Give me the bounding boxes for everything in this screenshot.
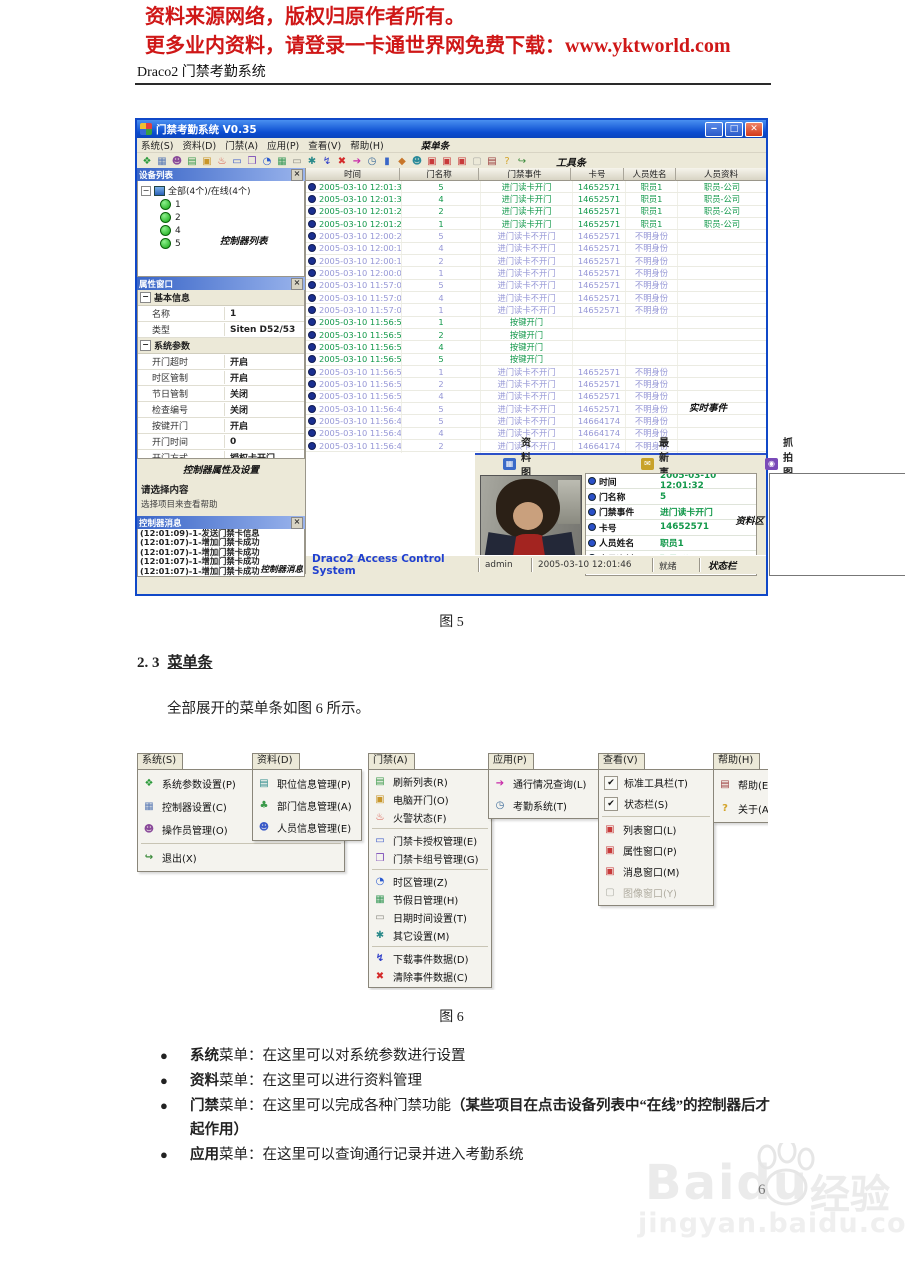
menubar-item[interactable]: 查看(V): [308, 138, 341, 152]
detail-row: 卡号14652571: [586, 520, 756, 535]
event-area: 时间门名称门禁事件卡号人员姓名人员资料 实时事件 2005-03-10 12:0…: [306, 168, 766, 574]
menu-item-label: 列表窗口(L): [623, 822, 676, 837]
name-cell: 不明身份: [626, 267, 678, 278]
bullet-marker: ●: [160, 1069, 190, 1093]
image-window-icon[interactable]: ▢: [470, 154, 484, 168]
document-title: Draco2 门禁考勤系统: [137, 61, 266, 81]
info-cell: [678, 415, 766, 426]
message-list: (12:01:09)-1-发送门禁卡信息(12:01:07)-1-增加门禁卡成功…: [137, 529, 305, 577]
event-icon: [308, 343, 316, 351]
door-cell: 2: [402, 329, 481, 340]
event-icon: [308, 232, 316, 240]
event-icon: [308, 331, 316, 339]
door-cell: 4: [402, 243, 481, 254]
settings-icon[interactable]: ✱: [305, 154, 319, 168]
event-time: 2005-03-10 12:01:30: [319, 194, 402, 204]
event-time: 2005-03-10 11:56:40: [319, 441, 402, 451]
event-time-cell: 2005-03-10 11:56:58: [306, 317, 402, 328]
about-icon: ?: [718, 802, 732, 815]
table-row[interactable]: 2005-03-10 11:56:581按键开门: [306, 317, 766, 329]
table-row[interactable]: 2005-03-10 11:56:522进门读卡不开门14652571不明身份: [306, 378, 766, 390]
table-row[interactable]: 2005-03-10 12:01:272进门读卡开门14652571职员1职员-…: [306, 206, 766, 218]
door-cell: 2: [402, 206, 481, 217]
table-row[interactable]: 2005-03-10 11:56:424进门读卡不开门14664174不明身份: [306, 428, 766, 440]
menu-tab[interactable]: 系统(S): [137, 753, 183, 769]
menu-item[interactable]: ✖清除事件数据(C): [369, 967, 491, 985]
property-label: 节日管制: [138, 387, 225, 400]
table-header: 时间门名称门禁事件卡号人员姓名人员资料: [306, 168, 766, 181]
property-row[interactable]: 节日管制关闭: [138, 386, 304, 402]
exit-icon[interactable]: ↪: [515, 154, 529, 168]
column-header[interactable]: 门名称: [400, 168, 479, 181]
info-cell: [678, 255, 766, 266]
table-row[interactable]: 2005-03-10 11:56:402进门读卡不开门14664174不明身份: [306, 440, 766, 452]
attendance-icon: ◷: [493, 799, 507, 812]
property-value: 0: [225, 437, 236, 447]
close-icon[interactable]: ×: [291, 517, 303, 529]
latest-event-icon: ✉: [641, 458, 654, 470]
computers-icon: [154, 186, 165, 196]
menu-dropdown: ✔标准工具栏(T)✔状态栏(S)▣列表窗口(L)▣属性窗口(P)▣消息窗口(M)…: [598, 769, 714, 906]
datetime-icon[interactable]: ▭: [290, 154, 304, 168]
snapshot-box: [769, 473, 905, 576]
property-section-label: 基本信息: [154, 291, 190, 304]
event-icon: [308, 244, 316, 252]
system-params-icon: ❖: [142, 777, 156, 790]
event-time-cell: 2005-03-10 11:56:42: [306, 428, 402, 439]
controller-icon[interactable]: ▦: [155, 154, 169, 168]
bullet-icon: [588, 539, 596, 547]
menu-item[interactable]: ▣电脑开门(O): [369, 790, 491, 808]
operator-icon[interactable]: ☻: [170, 154, 184, 168]
event-cell: 进门读卡不开门: [481, 267, 573, 278]
bullet-icon: [588, 523, 596, 531]
event-time: 2005-03-10 11:56:58: [319, 342, 402, 352]
card-cell: [573, 329, 626, 340]
menu-separator: [372, 869, 488, 870]
event-time: 2005-03-10 11:56:50: [319, 391, 402, 401]
menu-item[interactable]: ↯下载事件数据(D): [369, 949, 491, 967]
door-cell: 5: [402, 415, 481, 426]
property-value: 关闭: [225, 403, 248, 416]
name-cell: [626, 354, 678, 365]
fire-icon[interactable]: ♨: [215, 154, 229, 168]
card-cell: 14664174: [573, 428, 626, 439]
table-row[interactable]: 2005-03-10 12:01:304进门读卡开门14652571职员1职员-…: [306, 193, 766, 205]
column-header[interactable]: 时间: [306, 168, 400, 181]
property-row[interactable]: 类型Siten D52/53: [138, 322, 304, 338]
menu-item[interactable]: ➔通行情况查询(L): [489, 772, 608, 794]
event-icon: [308, 392, 316, 400]
event-time-cell: 2005-03-10 12:01:21: [306, 218, 402, 229]
property-label: 开门超时: [138, 355, 225, 368]
hint-text: 选择项目来查看帮助: [141, 498, 301, 510]
menu-item[interactable]: ▣消息窗口(M): [599, 861, 713, 882]
property-row[interactable]: 时区管制开启: [138, 370, 304, 386]
event-time-cell: 2005-03-10 11:56:50: [306, 391, 402, 402]
refresh-icon[interactable]: ▤: [185, 154, 199, 168]
property-value: Siten D52/53: [225, 325, 295, 335]
bullet-marker: ●: [160, 1044, 190, 1068]
maximize-button[interactable]: □: [725, 122, 743, 137]
name-cell: 不明身份: [626, 366, 678, 377]
msg-window-icon: ▣: [603, 865, 617, 878]
event-time: 2005-03-10 12:00:22: [319, 231, 402, 241]
copyright-notice: 资料来源网络，版权归原作者所有。 更多业内资料，请登录一卡通世界网免费下载：ww…: [145, 3, 731, 61]
menu-item[interactable]: ▤帮助(E): [714, 772, 768, 796]
detail-row: 门禁事件进门读卡开门: [586, 505, 756, 520]
info-cell: [678, 428, 766, 439]
menu-item[interactable]: ?关于(A): [714, 796, 768, 820]
pass-query-icon: ➔: [493, 777, 507, 790]
event-time-cell: 2005-03-10 11:56:58: [306, 329, 402, 340]
holiday-icon[interactable]: ▦: [275, 154, 289, 168]
property-label: 检查编号: [138, 403, 225, 416]
menu-item[interactable]: ☻人员信息管理(E): [253, 816, 361, 838]
event-time: 2005-03-10 11:57:04: [319, 293, 402, 303]
info-cell: [678, 366, 766, 377]
menu-tab[interactable]: 应用(P): [488, 753, 534, 769]
property-row[interactable]: 开门时间0: [138, 434, 304, 450]
menu-dropdown: ▤刷新列表(R)▣电脑开门(O)♨火警状态(F)▭门禁卡授权管理(E)❒门禁卡组…: [368, 769, 492, 988]
menubar-item[interactable]: 应用(P): [267, 138, 299, 152]
title-bar[interactable]: 门禁考勤系统 V0.35 ‒ □ ✕: [137, 120, 766, 138]
table-row[interactable]: 2005-03-10 12:00:225进门读卡不开门14652571不明身份: [306, 230, 766, 242]
column-header[interactable]: 门禁事件: [479, 168, 571, 181]
user-label: admin: [479, 558, 532, 572]
property-section[interactable]: −基本信息: [138, 290, 304, 306]
event-time-cell: 2005-03-10 12:00:22: [306, 230, 402, 241]
tree-root-label: 全部(4个)/在线(4个): [168, 184, 251, 197]
name-cell: 不明身份: [626, 255, 678, 266]
info-cell: [678, 280, 766, 291]
menu-item[interactable]: ▣属性窗口(P): [599, 840, 713, 861]
table-row[interactable]: 2005-03-10 11:56:582按键开门: [306, 329, 766, 341]
event-time-cell: 2005-03-10 12:00:08: [306, 267, 402, 278]
query-icon[interactable]: ➔: [350, 154, 364, 168]
table-row[interactable]: 2005-03-10 11:57:044进门读卡不开门14652571不明身份: [306, 292, 766, 304]
message-panel-header[interactable]: 控制器消息 ×: [137, 516, 305, 529]
event-time-cell: 2005-03-10 12:01:27: [306, 206, 402, 217]
menu-item-label: 退出(X): [162, 850, 197, 865]
property-row[interactable]: 按键开门开启: [138, 418, 304, 434]
connect-icon[interactable]: ❖: [140, 154, 154, 168]
menu-item-label: 职位信息管理(P): [277, 776, 351, 791]
name-cell: 不明身份: [626, 280, 678, 291]
tree-node[interactable]: 2: [138, 211, 304, 224]
property-label: 按键开门: [138, 419, 225, 432]
menu-item[interactable]: ▣列表窗口(L): [599, 819, 713, 840]
table-row[interactable]: 2005-03-10 12:00:132进门读卡不开门14652571不明身份: [306, 255, 766, 267]
detail-label-text: 门名称: [599, 490, 625, 503]
column-header[interactable]: 人员姓名: [624, 168, 676, 181]
card-cell: 14652571: [573, 391, 626, 402]
online-controller-icon: [160, 238, 171, 249]
property-row[interactable]: 开门超时开启: [138, 354, 304, 370]
event-icon: [308, 183, 316, 191]
menu-separator: [141, 843, 341, 844]
menu-item[interactable]: ✔状态栏(S): [599, 793, 713, 814]
close-button[interactable]: ✕: [745, 122, 763, 137]
online-controller-icon: [160, 212, 171, 223]
message-annotation: 控制器消息: [260, 563, 303, 575]
bullet-icon: [588, 477, 596, 485]
event-icon: [308, 355, 316, 363]
event-time-cell: 2005-03-10 12:01:32: [306, 181, 402, 192]
event-time: 2005-03-10 11:56:52: [319, 367, 402, 377]
bullet-text: 系统菜单：在这里可以对系统参数进行设置: [190, 1044, 466, 1068]
name-cell: 职员1: [626, 206, 678, 217]
menu-item[interactable]: ↪退出(X): [138, 846, 344, 869]
event-time-cell: 2005-03-10 11:56:58: [306, 341, 402, 352]
event-icon: [308, 417, 316, 425]
event-time-cell: 2005-03-10 11:57:05: [306, 280, 402, 291]
card-auth-icon[interactable]: ▭: [230, 154, 244, 168]
close-icon[interactable]: ×: [291, 169, 303, 181]
name-cell: 职员1: [626, 193, 678, 204]
fig6-caption: 图 6: [135, 1006, 768, 1026]
menu-查看(V): 查看(V)✔标准工具栏(T)✔状态栏(S)▣列表窗口(L)▣属性窗口(P)▣消息…: [598, 748, 722, 906]
menu-item[interactable]: ♣部门信息管理(A): [253, 794, 361, 816]
clear-icon[interactable]: ✖: [335, 154, 349, 168]
name-cell: [626, 329, 678, 340]
tree-node-label: 1: [175, 200, 181, 210]
event-time-cell: 2005-03-10 11:56:40: [306, 440, 402, 451]
event-time: 2005-03-10 12:01:27: [319, 206, 402, 216]
property-label: 类型: [138, 323, 225, 336]
event-time: 2005-03-10 12:00:19: [319, 243, 402, 253]
property-label: 开门时间: [138, 435, 225, 448]
property-value: 关闭: [225, 387, 248, 400]
position-info-icon: ▤: [257, 777, 271, 790]
toolbar-annotation: 工具条: [556, 154, 586, 169]
property-value: 授权卡开门: [225, 451, 275, 459]
menubar-item[interactable]: 资料(D): [182, 138, 216, 152]
detail-value: 进门读卡开门: [660, 505, 713, 518]
name-cell: 不明身份: [626, 243, 678, 254]
event-cell: 进门读卡不开门: [481, 280, 573, 291]
card-cell: 14652571: [573, 267, 626, 278]
ready-label: 就绪: [653, 558, 700, 572]
door-cell: 2: [402, 440, 481, 451]
menubar-item[interactable]: 帮助(H): [350, 138, 384, 152]
column-header[interactable]: 卡号: [571, 168, 624, 181]
image-window-icon: ▢: [603, 886, 617, 899]
lock-icon[interactable]: ▮: [380, 154, 394, 168]
menu-门禁(A): 门禁(A)▤刷新列表(R)▣电脑开门(O)♨火警状态(F)▭门禁卡授权管理(E)…: [368, 748, 500, 988]
name-cell: 职员1: [626, 181, 678, 192]
door-cell: 1: [402, 267, 481, 278]
card-cell: 14652571: [573, 243, 626, 254]
bullet-item: ●门禁菜单：在这里可以完成各种门禁功能（某些项目在点击设备列表中“在线”的控制器…: [160, 1094, 778, 1142]
event-time: 2005-03-10 12:00:08: [319, 268, 402, 278]
tree-node-label: 2: [175, 213, 181, 223]
info-cell: [678, 378, 766, 389]
info-cell: [678, 440, 766, 451]
info-cell: [678, 304, 766, 315]
table-row[interactable]: 2005-03-10 11:56:521进门读卡不开门14652571不明身份: [306, 366, 766, 378]
event-icon: [308, 318, 316, 326]
table-row[interactable]: 2005-03-10 12:01:325进门读卡开门14652571职员1职员-…: [306, 181, 766, 193]
table-row[interactable]: 2005-03-10 11:57:011进门读卡不开门14652571不明身份: [306, 304, 766, 316]
event-icon: [308, 405, 316, 413]
about-icon[interactable]: ?: [500, 154, 514, 168]
event-cell: 进门读卡开门: [481, 193, 573, 204]
timezone-icon[interactable]: ◔: [260, 154, 274, 168]
event-cell: 进门读卡开门: [481, 181, 573, 192]
detail-value: 职员1: [660, 536, 684, 549]
door-cell: 5: [402, 280, 481, 291]
property-panel-header[interactable]: 属性窗口 ×: [137, 277, 305, 290]
msg-window-icon[interactable]: ▣: [455, 154, 469, 168]
section-title: 菜单条: [168, 655, 213, 671]
event-cell: 进门读卡不开门: [481, 366, 573, 377]
menu-tab[interactable]: 资料(D): [252, 753, 300, 769]
close-icon[interactable]: ×: [291, 278, 303, 290]
download-events-icon: ↯: [373, 952, 387, 965]
camera-icon: ◉: [765, 458, 778, 470]
event-cell: 进门读卡不开门: [481, 243, 573, 254]
open-door-icon[interactable]: ▣: [200, 154, 214, 168]
door-cell: 2: [402, 452, 481, 453]
menu-item[interactable]: ✔标准工具栏(T): [599, 772, 713, 793]
card-group-icon[interactable]: ❒: [245, 154, 259, 168]
menubar-item[interactable]: 门禁(A): [225, 138, 258, 152]
bullet-text: 应用菜单：在这里可以查询通行记录并进入考勤系统: [190, 1143, 524, 1167]
key-icon[interactable]: ◆: [395, 154, 409, 168]
event-time: 2005-03-10 11:57:05: [319, 280, 402, 290]
event-icon: [308, 429, 316, 437]
event-time-cell: 2005-03-10 11:56:46: [306, 415, 402, 426]
menu-descriptions: ●系统菜单：在这里可以对系统参数进行设置●资料菜单：在这里可以进行资料管理●门禁…: [160, 1044, 778, 1168]
event-icon: [308, 442, 316, 450]
table-row[interactable]: 2005-03-10 12:00:081进门读卡不开门14652571不明身份: [306, 267, 766, 279]
menu-item-label: 帮助(E): [738, 777, 768, 792]
property-label: 名称: [138, 307, 225, 320]
menubar-item[interactable]: 系统(S): [141, 138, 173, 152]
detail-label-text: 卡号: [599, 521, 617, 534]
device-tree: − 全部(4个)/在线(4个) 1245 控制器列表: [137, 181, 305, 277]
door-cell: 4: [402, 193, 481, 204]
tree-node[interactable]: 1: [138, 198, 304, 211]
property-section[interactable]: −系统参数: [138, 338, 304, 354]
event-cell: 进门读卡不开门: [481, 230, 573, 241]
event-time-cell: 2005-03-10 11:56:49: [306, 403, 402, 414]
card-cell: 14652571: [573, 181, 626, 192]
menu-item[interactable]: ◔时区管理(Z): [369, 872, 491, 890]
event-cell: 按键开门: [481, 317, 573, 328]
menu-item[interactable]: ❒门禁卡组号管理(G): [369, 849, 491, 867]
download-icon[interactable]: ↯: [320, 154, 334, 168]
info-cell: 职员-公司: [678, 181, 766, 192]
property-row[interactable]: 检查编号关闭: [138, 402, 304, 418]
door-cell: 1: [402, 304, 481, 315]
detail-label: 门名称: [586, 490, 660, 503]
property-row[interactable]: 名称1: [138, 306, 304, 322]
left-panel: 设备列表 × − 全部(4个)/在线(4个) 1245 控制器列表 属性窗口 ×…: [137, 168, 306, 574]
device-panel-header[interactable]: 设备列表 ×: [137, 168, 305, 181]
property-grid: −基本信息名称1类型Siten D52/53−系统参数开门超时开启时区管制开启节…: [137, 290, 305, 459]
menu-item-label: 考勤系统(T): [513, 798, 567, 813]
door-cell: 5: [402, 230, 481, 241]
menu-item-label: 属性窗口(P): [623, 843, 677, 858]
menu-资料(D): 资料(D)▤职位信息管理(P)♣部门信息管理(A)☻人员信息管理(E): [252, 748, 370, 841]
event-cell: 进门读卡不开门: [481, 391, 573, 402]
menu-item[interactable]: ▭日期时间设置(T): [369, 908, 491, 926]
column-header[interactable]: 人员资料: [676, 168, 766, 181]
table-row[interactable]: 2005-03-10 11:56:565按键开门: [306, 354, 766, 366]
info-cell: 职员-公司: [678, 193, 766, 204]
menu-tab[interactable]: 门禁(A): [368, 753, 415, 769]
menu-item-label: 状态栏(S): [624, 796, 668, 811]
menu-item-label: 刷新列表(R): [393, 774, 448, 789]
collapse-icon[interactable]: −: [140, 340, 151, 351]
menu-item[interactable]: ▤职位信息管理(P): [253, 772, 361, 794]
list-window-icon: ▣: [603, 823, 617, 836]
tree-root[interactable]: − 全部(4个)/在线(4个): [138, 181, 304, 198]
table-row[interactable]: 2005-03-10 11:56:584按键开门: [306, 341, 766, 353]
menu-item-label: 操作员管理(O): [162, 822, 228, 837]
menu-dropdown: ➔通行情况查询(L)◷考勤系统(T): [488, 769, 609, 819]
refresh-list-icon: ▤: [373, 775, 387, 788]
menu-tab[interactable]: 查看(V): [598, 753, 645, 769]
list-window-icon[interactable]: ▣: [425, 154, 439, 168]
detail-label-text: 人员姓名: [599, 536, 634, 549]
table-row[interactable]: 2005-03-10 12:01:211进门读卡开门14652571职员1职员-…: [306, 218, 766, 230]
minimize-button[interactable]: ‒: [705, 122, 723, 137]
bullet-text: 门禁菜单：在这里可以完成各种门禁功能（某些项目在点击设备列表中“在线”的控制器后…: [190, 1094, 778, 1142]
menu-item[interactable]: ▦节假日管理(H): [369, 890, 491, 908]
info-cell: [678, 354, 766, 365]
table-row[interactable]: 2005-03-10 12:00:194进门读卡不开门14652571不明身份: [306, 243, 766, 255]
property-row[interactable]: 开门方式授权卡开门: [138, 450, 304, 459]
section-heading: 2. 3菜单条: [137, 651, 213, 672]
collapse-icon[interactable]: −: [140, 292, 151, 303]
door-cell: 4: [402, 341, 481, 352]
people-icon[interactable]: ☻: [410, 154, 424, 168]
card-cell: 14652571: [573, 218, 626, 229]
department-info-icon: ♣: [257, 799, 271, 812]
menu-item[interactable]: ◷考勤系统(T): [489, 794, 608, 816]
prop-window-icon[interactable]: ▣: [440, 154, 454, 168]
watermark-url: jingyan.baidu.com: [638, 1208, 905, 1239]
menu-item-label: 门禁卡授权管理(E): [393, 833, 477, 848]
name-cell: 不明身份: [626, 403, 678, 414]
attendance-icon[interactable]: ◷: [365, 154, 379, 168]
expanded-menus-figure: 系统(S)❖系统参数设置(P)▦控制器设置(C)☻操作员管理(O)↪退出(X)资…: [135, 748, 768, 990]
menu-item[interactable]: ♨火警状态(F): [369, 808, 491, 826]
menu-item-label: 人员信息管理(E): [277, 820, 351, 835]
help-icon[interactable]: ▤: [485, 154, 499, 168]
menu-item[interactable]: ✱其它设置(M): [369, 926, 491, 944]
table-row[interactable]: 2005-03-10 11:57:055进门读卡不开门14652571不明身份: [306, 280, 766, 292]
event-time-cell: 2005-03-10 11:56:52: [306, 378, 402, 389]
door-cell: 5: [402, 403, 481, 414]
event-time: 2005-03-10 11:57:01: [319, 305, 402, 315]
menu-item[interactable]: ▭门禁卡授权管理(E): [369, 831, 491, 849]
menu-item[interactable]: ▤刷新列表(R): [369, 772, 491, 790]
name-cell: 不明身份: [626, 378, 678, 389]
menu-item-label: 控制器设置(C): [162, 799, 227, 814]
table-row[interactable]: 2005-03-10 11:56:465进门读卡不开门14664174不明身份: [306, 415, 766, 427]
menu-separator: [372, 946, 488, 947]
bullet-item: ●资料菜单：在这里可以进行资料管理: [160, 1069, 778, 1093]
event-cell: 进门读卡不开门: [481, 378, 573, 389]
name-cell: 不明身份: [626, 415, 678, 426]
event-icon: [308, 269, 316, 277]
menu-tab[interactable]: 帮助(H): [713, 753, 760, 769]
exit-icon: ↪: [142, 851, 156, 864]
